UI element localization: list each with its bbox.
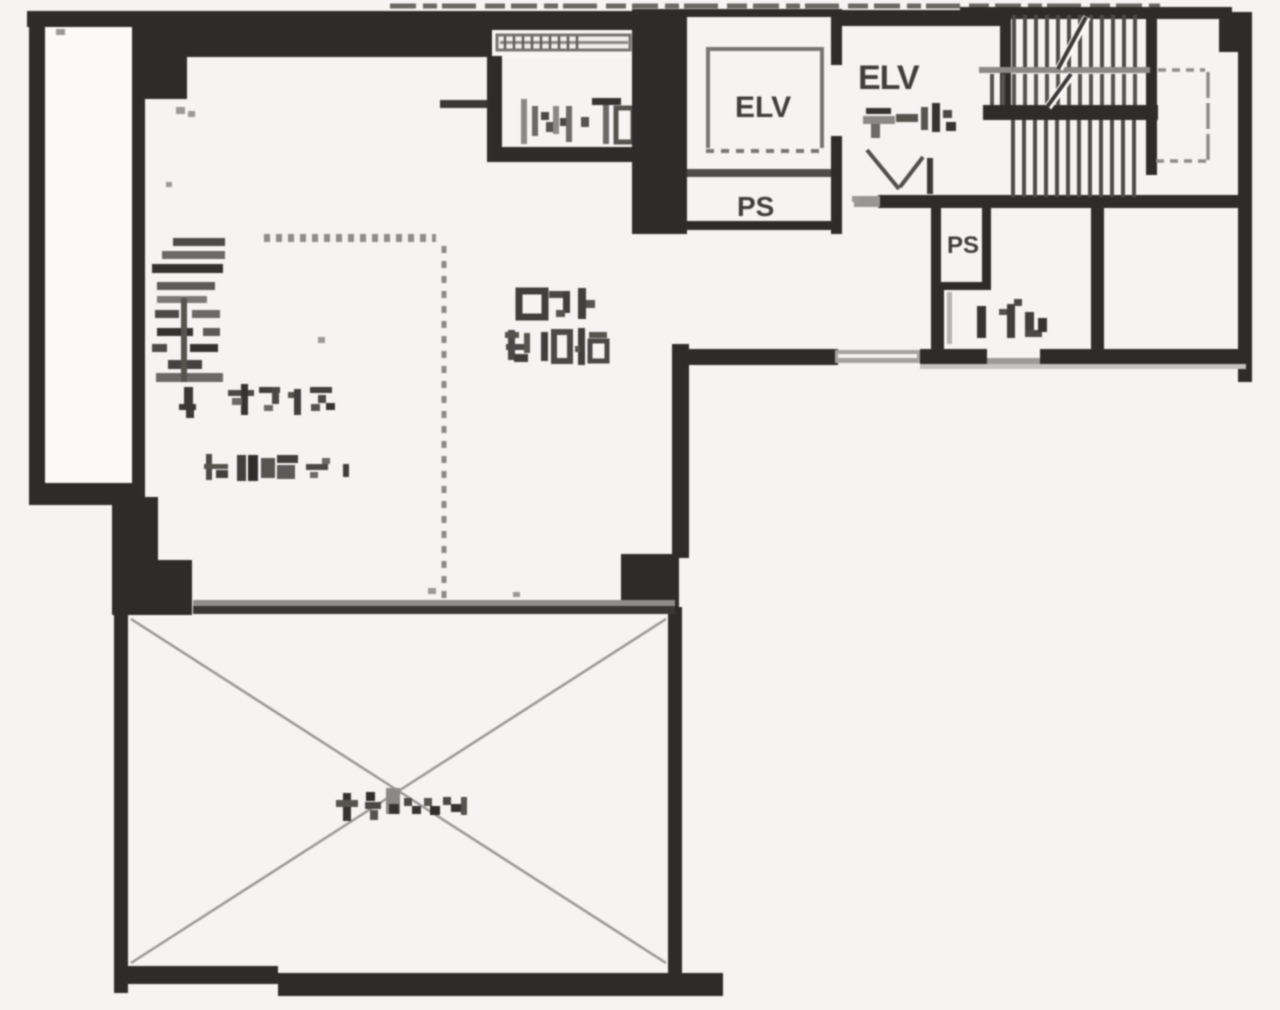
svg-text:ELV: ELV — [858, 59, 920, 97]
svg-text:ELV: ELV — [735, 91, 791, 124]
svg-text:PS: PS — [947, 232, 979, 259]
svg-text:PS: PS — [737, 191, 774, 222]
